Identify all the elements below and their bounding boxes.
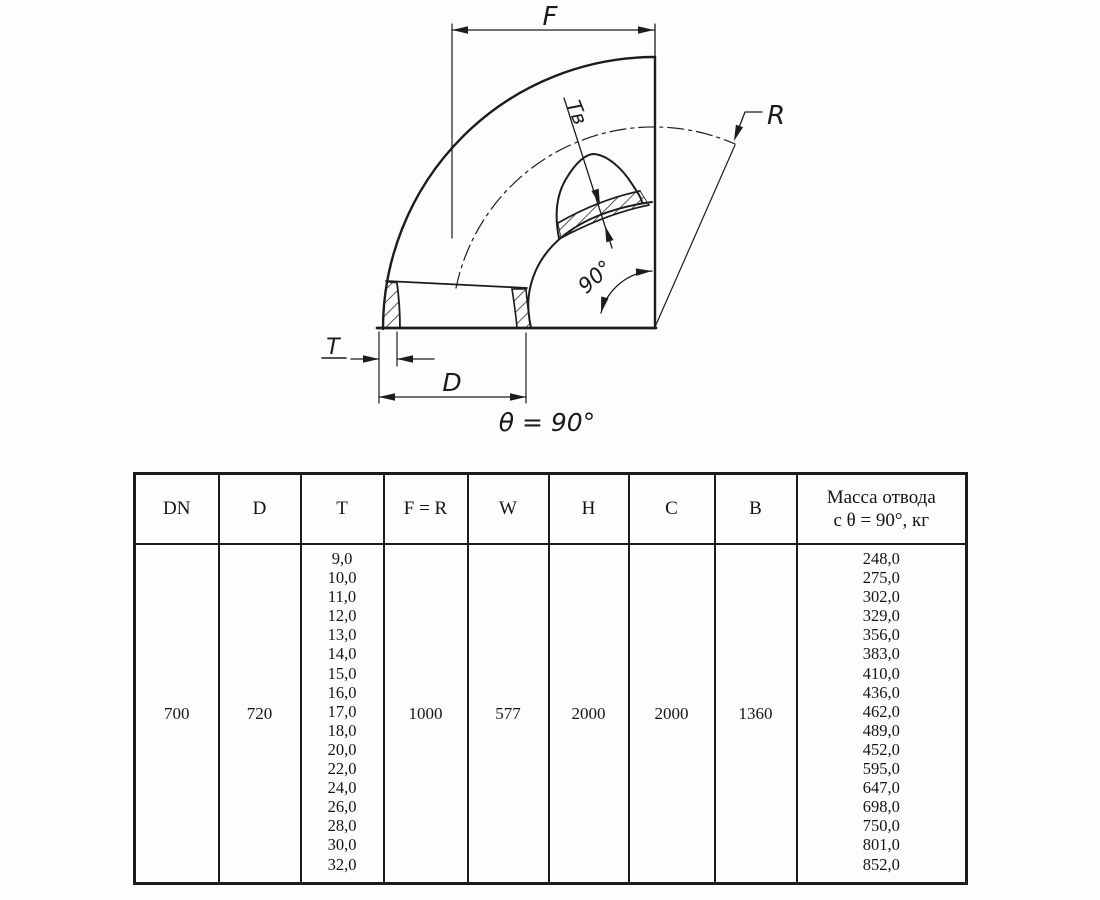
cell-b: 1360 — [715, 544, 797, 884]
list-value: 11,0 — [302, 587, 383, 606]
list-value: 12,0 — [302, 606, 383, 625]
d-arrow-left — [379, 393, 395, 401]
col-header-fr: F = R — [384, 474, 468, 545]
list-value: 647,0 — [798, 778, 966, 797]
d-arrow-right — [510, 393, 526, 401]
list-value: 462,0 — [798, 702, 966, 721]
angle-value-label: 90° — [573, 255, 617, 298]
col-header-dn: DN — [135, 474, 219, 545]
list-value: 595,0 — [798, 759, 966, 778]
list-value: 10,0 — [302, 568, 383, 587]
mass-header-line2: с θ = 90°, кг — [798, 509, 966, 532]
col-header-b: B — [715, 474, 797, 545]
crescent-hatch — [558, 191, 649, 238]
scanned-page: F R T D Tв 90° θ = 90° DN D T F = R W H … — [0, 0, 1100, 900]
list-value: 356,0 — [798, 625, 966, 644]
cell-mass-values: 248,0275,0302,0329,0356,0383,0410,0436,0… — [797, 544, 967, 884]
list-value: 17,0 — [302, 702, 383, 721]
list-value: 9,0 — [302, 549, 383, 568]
list-value: 302,0 — [798, 587, 966, 606]
list-value: 383,0 — [798, 644, 966, 663]
dimension-table: DN D T F = R W H C B Масса отвода с θ = … — [133, 472, 968, 885]
list-value: 30,0 — [302, 835, 383, 854]
radius-line — [655, 145, 735, 327]
theta-note-label: θ = 90° — [499, 408, 595, 437]
cell-dn: 700 — [135, 544, 219, 884]
r-leader-arrow — [730, 125, 743, 143]
angle-arrow-upper — [636, 267, 652, 276]
list-value: 410,0 — [798, 664, 966, 683]
list-value: 329,0 — [798, 606, 966, 625]
list-value: 20,0 — [302, 740, 383, 759]
list-value: 28,0 — [302, 816, 383, 835]
col-header-d: D — [219, 474, 301, 545]
t-arrow-left — [363, 355, 379, 363]
cell-fr: 1000 — [384, 544, 468, 884]
r-dimension-label: R — [767, 101, 785, 131]
col-header-t: T — [301, 474, 384, 545]
cell-t-values: 9,010,011,012,013,014,015,016,017,018,02… — [301, 544, 384, 884]
f-dimension-label: F — [543, 2, 559, 32]
data-row: 700 720 9,010,011,012,013,014,015,016,01… — [135, 544, 967, 884]
f-arrow-right — [638, 26, 654, 34]
left-wall-hatch — [383, 282, 400, 328]
angle-arrow-lower — [597, 297, 608, 314]
list-value: 26,0 — [302, 797, 383, 816]
list-value: 750,0 — [798, 816, 966, 835]
list-value: 22,0 — [302, 759, 383, 778]
header-row: DN D T F = R W H C B Масса отвода с θ = … — [135, 474, 967, 545]
t-inner-arrow-lower — [601, 225, 613, 243]
list-value: 489,0 — [798, 721, 966, 740]
list-value: 32,0 — [302, 855, 383, 874]
r-leader — [735, 112, 762, 138]
col-header-c: C — [629, 474, 715, 545]
elbow-drawing: F R T D Tв 90° θ = 90° — [0, 0, 1100, 465]
col-header-w: W — [468, 474, 549, 545]
list-value: 13,0 — [302, 625, 383, 644]
list-value: 15,0 — [302, 664, 383, 683]
list-value: 452,0 — [798, 740, 966, 759]
cell-h: 2000 — [549, 544, 629, 884]
mass-header-line1: Масса отвода — [798, 486, 966, 509]
col-header-mass: Масса отвода с θ = 90°, кг — [797, 474, 967, 545]
list-value: 14,0 — [302, 644, 383, 663]
cell-d: 720 — [219, 544, 301, 884]
list-value: 275,0 — [798, 568, 966, 587]
d-dimension-label: D — [442, 368, 461, 397]
t-inner-dimension-label: Tв — [561, 97, 592, 128]
list-value: 801,0 — [798, 835, 966, 854]
cell-w: 577 — [468, 544, 549, 884]
list-value: 24,0 — [302, 778, 383, 797]
list-value: 16,0 — [302, 683, 383, 702]
list-value: 436,0 — [798, 683, 966, 702]
list-value: 698,0 — [798, 797, 966, 816]
t-dimension-label: T — [326, 335, 341, 360]
f-arrow-left — [452, 26, 468, 34]
list-value: 18,0 — [302, 721, 383, 740]
cell-c: 2000 — [629, 544, 715, 884]
col-header-h: H — [549, 474, 629, 545]
list-value: 852,0 — [798, 855, 966, 874]
t-arrow-right — [397, 355, 413, 363]
list-value: 248,0 — [798, 549, 966, 568]
